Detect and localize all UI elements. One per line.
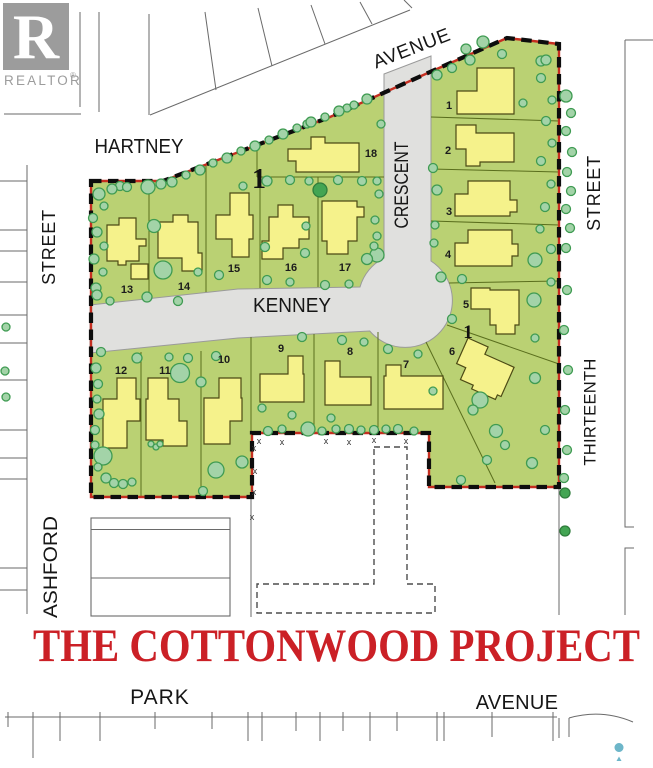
svg-text:STREET: STREET [584, 155, 604, 231]
svg-text:9: 9 [278, 343, 284, 355]
svg-text:ASHFORD: ASHFORD [40, 516, 62, 618]
svg-text:4: 4 [445, 249, 452, 261]
svg-text:®: ® [70, 71, 76, 80]
svg-text:AVENUE: AVENUE [476, 692, 559, 714]
svg-text:1: 1 [446, 100, 452, 112]
svg-text:x: x [372, 435, 377, 445]
svg-text:x: x [280, 437, 285, 447]
svg-text:17: 17 [339, 262, 351, 274]
svg-text:x: x [257, 436, 262, 446]
svg-text:x: x [250, 512, 255, 522]
svg-text:12: 12 [115, 365, 127, 377]
svg-text:16: 16 [285, 262, 297, 274]
svg-text:x: x [252, 487, 257, 497]
svg-text:x: x [253, 466, 258, 476]
svg-text:x: x [404, 436, 409, 446]
svg-text:13: 13 [121, 284, 133, 296]
svg-text:CRESCENT: CRESCENT [392, 141, 413, 228]
svg-text:HARTNEY: HARTNEY [95, 136, 184, 158]
svg-text:STREET: STREET [39, 209, 59, 285]
svg-text:6: 6 [449, 346, 455, 358]
svg-text:THE COTTONWOOD PROJECT: THE COTTONWOOD PROJECT [33, 620, 640, 672]
svg-text:x: x [347, 437, 352, 447]
svg-text:2: 2 [445, 145, 451, 157]
svg-text:18: 18 [365, 148, 377, 160]
svg-text:R: R [13, 1, 60, 72]
svg-text:PARK: PARK [130, 686, 190, 709]
svg-text:15: 15 [228, 263, 240, 275]
svg-text:1: 1 [252, 164, 266, 195]
svg-text:3: 3 [446, 206, 452, 218]
svg-text:1: 1 [463, 322, 473, 343]
svg-text:14: 14 [178, 281, 191, 293]
svg-text:11: 11 [159, 365, 171, 377]
svg-text:x: x [324, 436, 329, 446]
svg-text:7: 7 [403, 359, 409, 371]
svg-text:KENNEY: KENNEY [253, 295, 331, 317]
svg-text:THIRTEENTH: THIRTEENTH [581, 358, 599, 465]
svg-text:5: 5 [463, 299, 469, 311]
svg-text:10: 10 [218, 354, 230, 366]
svg-text:x: x [252, 443, 257, 453]
svg-text:8: 8 [347, 346, 353, 358]
